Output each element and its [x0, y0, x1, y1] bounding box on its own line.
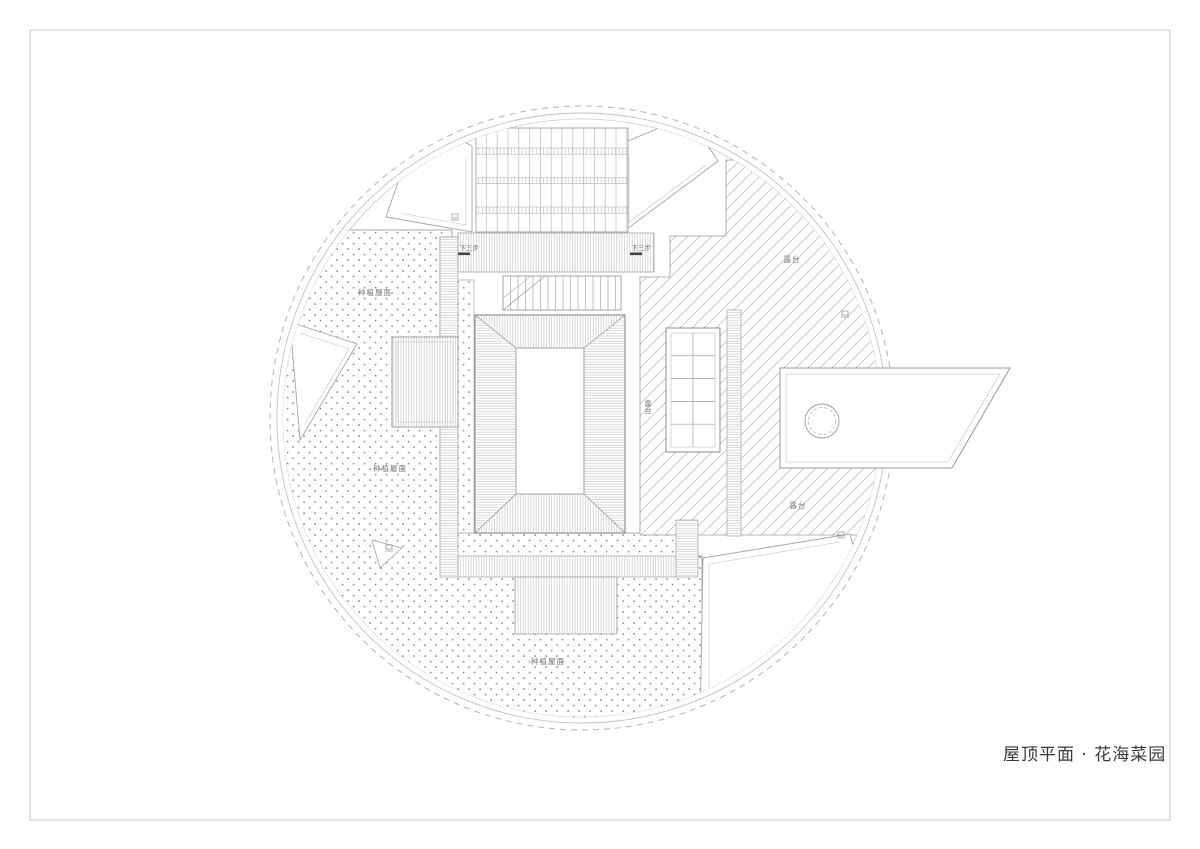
wedge-bottom-right	[700, 534, 880, 730]
planting-strip-left-of-building	[458, 280, 474, 533]
skylight	[666, 328, 720, 452]
main-building	[475, 315, 625, 533]
step-arrow-icon	[458, 253, 470, 256]
stair-run	[503, 276, 621, 310]
cantilever-platform	[780, 368, 1010, 468]
area-label-terrace-center: 露台	[644, 400, 652, 415]
walkway-stair-protrusion	[515, 577, 617, 634]
courtyard-opening	[516, 348, 584, 494]
left-wing	[392, 337, 458, 427]
gutter-band-right	[727, 310, 741, 536]
area-label-planting-left: 种植屋面	[373, 463, 407, 473]
svg-text:下三步: 下三步	[459, 244, 479, 252]
drawing-title: 屋顶平面 · 花海菜园	[1003, 745, 1166, 765]
roof-plan-drawing: 种植屋面 种植屋面 种植屋面 露台 露台 露台 下三步 下三步 屋顶平面 · 花…	[0, 0, 1200, 849]
roof-plan-sheet: 种植屋面 种植屋面 种植屋面 露台 露台 露台 下三步 下三步 屋顶平面 · 花…	[0, 0, 1200, 849]
walkway-band-below-building	[458, 556, 676, 577]
area-label-terrace-top: 露台	[784, 254, 801, 264]
area-label-terrace-lower: 露台	[790, 500, 807, 510]
area-label-planting-bottom: 种植屋面	[531, 656, 565, 666]
pergola-grid	[476, 128, 628, 232]
area-label-planting-upper: 种植屋面	[358, 287, 392, 297]
platform-column	[805, 404, 839, 438]
wedge-top-left	[386, 118, 472, 232]
gutter-band-lower-right	[676, 520, 698, 577]
svg-text:下三步: 下三步	[631, 244, 651, 252]
step-arrow-icon	[630, 253, 642, 256]
step-band	[458, 233, 654, 272]
wedge-top-right	[623, 116, 718, 232]
